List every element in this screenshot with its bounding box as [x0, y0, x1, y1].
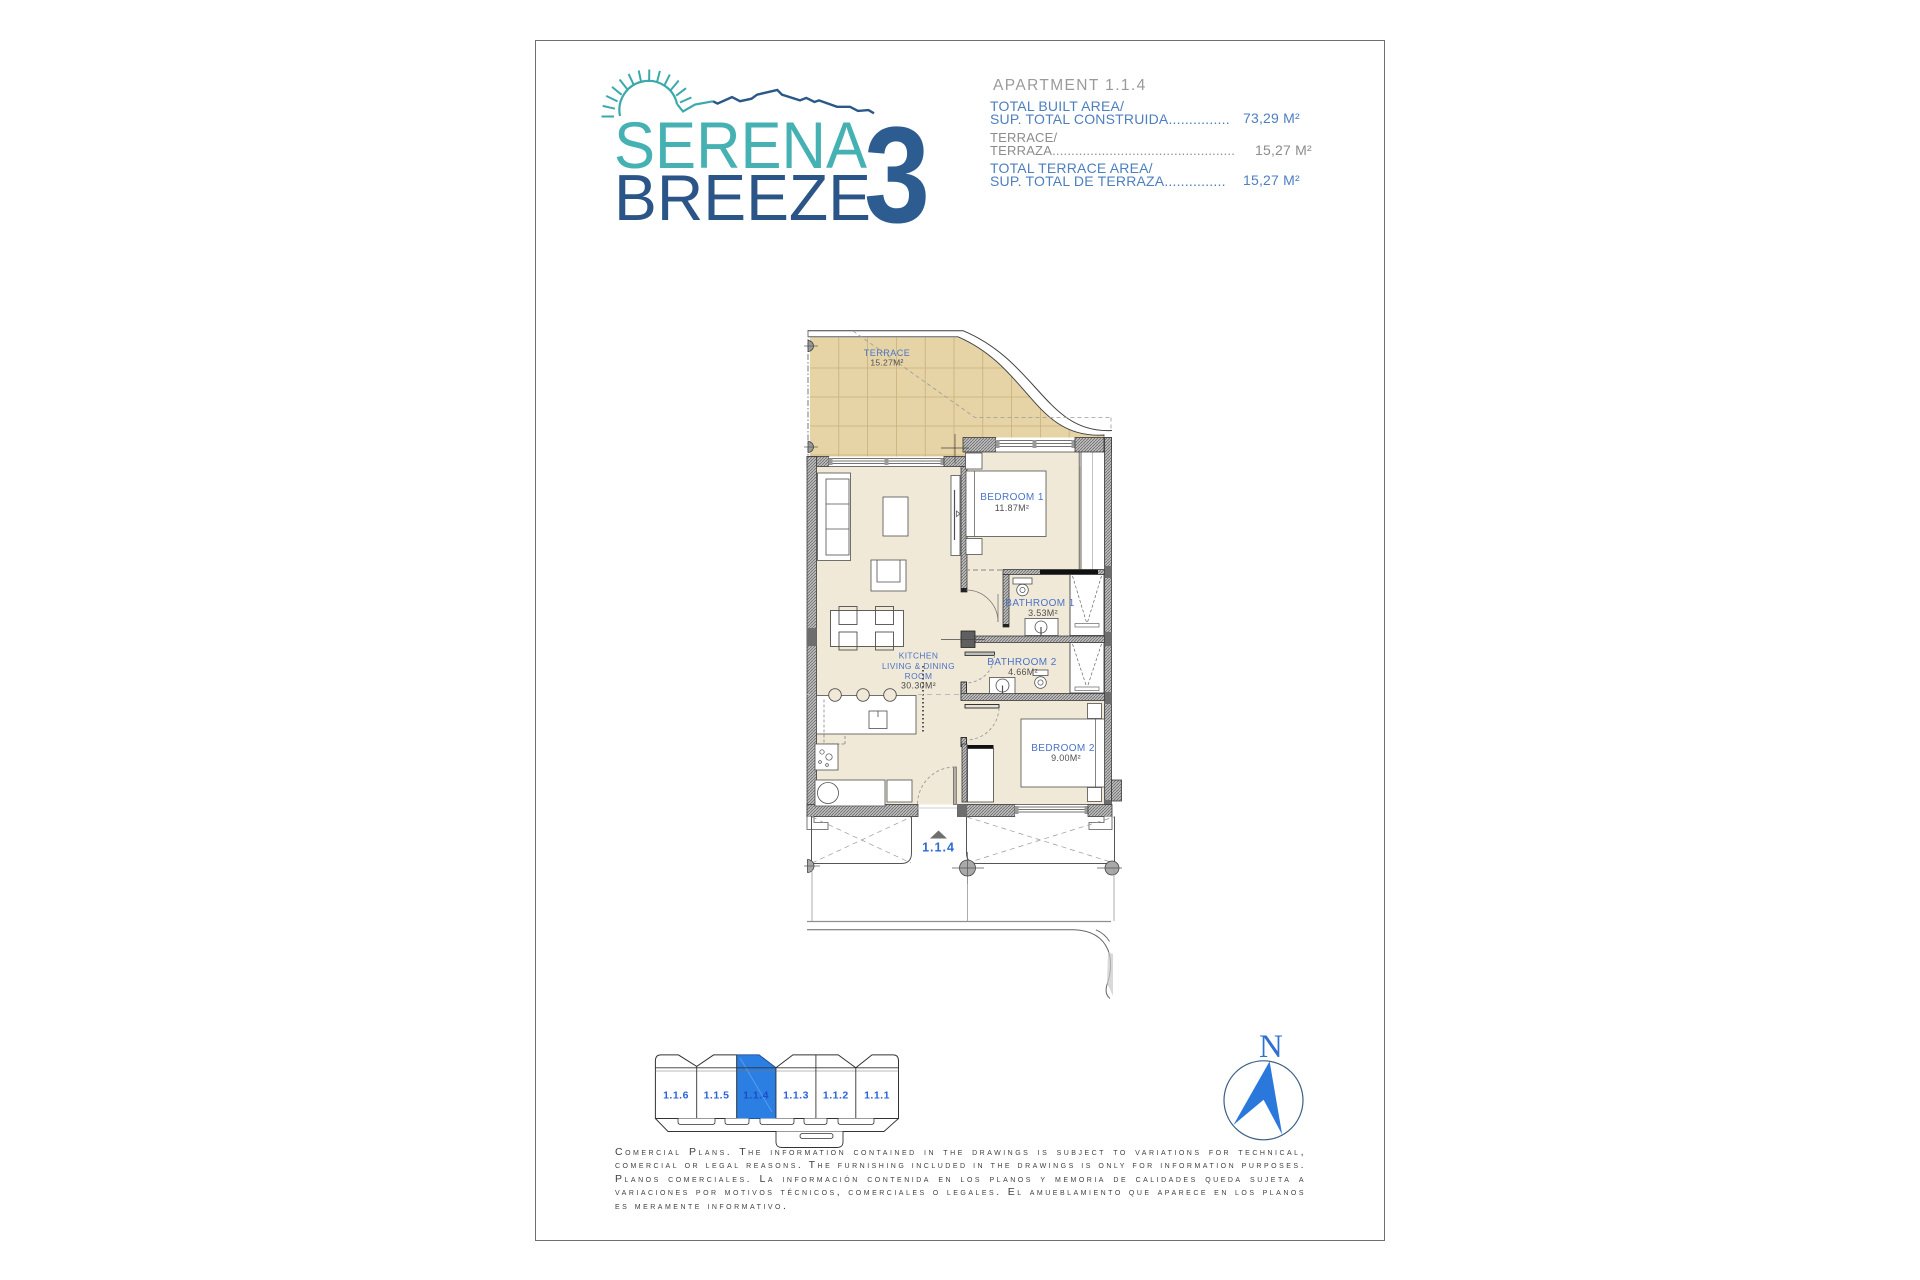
svg-text:15.27M²: 15.27M² — [870, 358, 903, 368]
svg-text:KITCHEN: KITCHEN — [899, 651, 939, 661]
svg-text:1.1.4: 1.1.4 — [922, 841, 955, 855]
svg-text:TERRACE: TERRACE — [864, 348, 911, 358]
svg-text:11.87M²: 11.87M² — [995, 503, 1029, 513]
svg-text:30.30M²: 30.30M² — [901, 681, 936, 691]
svg-text:4.66M²: 4.66M² — [1008, 667, 1038, 677]
svg-text:LIVING & DINING: LIVING & DINING — [882, 661, 955, 671]
svg-text:1.1.5: 1.1.5 — [704, 1090, 730, 1102]
svg-text:1.1.4: 1.1.4 — [743, 1090, 769, 1102]
svg-text:BREEZE: BREEZE — [614, 162, 871, 234]
svg-text:N: N — [1259, 1029, 1283, 1065]
svg-text:ROOM: ROOM — [905, 671, 933, 681]
svg-text:1.1.3: 1.1.3 — [783, 1090, 809, 1102]
svg-text:1.1.6: 1.1.6 — [663, 1090, 689, 1102]
svg-text:BEDROOM 1: BEDROOM 1 — [980, 492, 1044, 503]
svg-text:1.1.1: 1.1.1 — [864, 1090, 890, 1102]
svg-text:1.1.2: 1.1.2 — [823, 1090, 849, 1102]
svg-text:3: 3 — [864, 99, 930, 234]
svg-text:9.00M²: 9.00M² — [1051, 753, 1081, 763]
svg-text:3.53M²: 3.53M² — [1028, 608, 1058, 618]
